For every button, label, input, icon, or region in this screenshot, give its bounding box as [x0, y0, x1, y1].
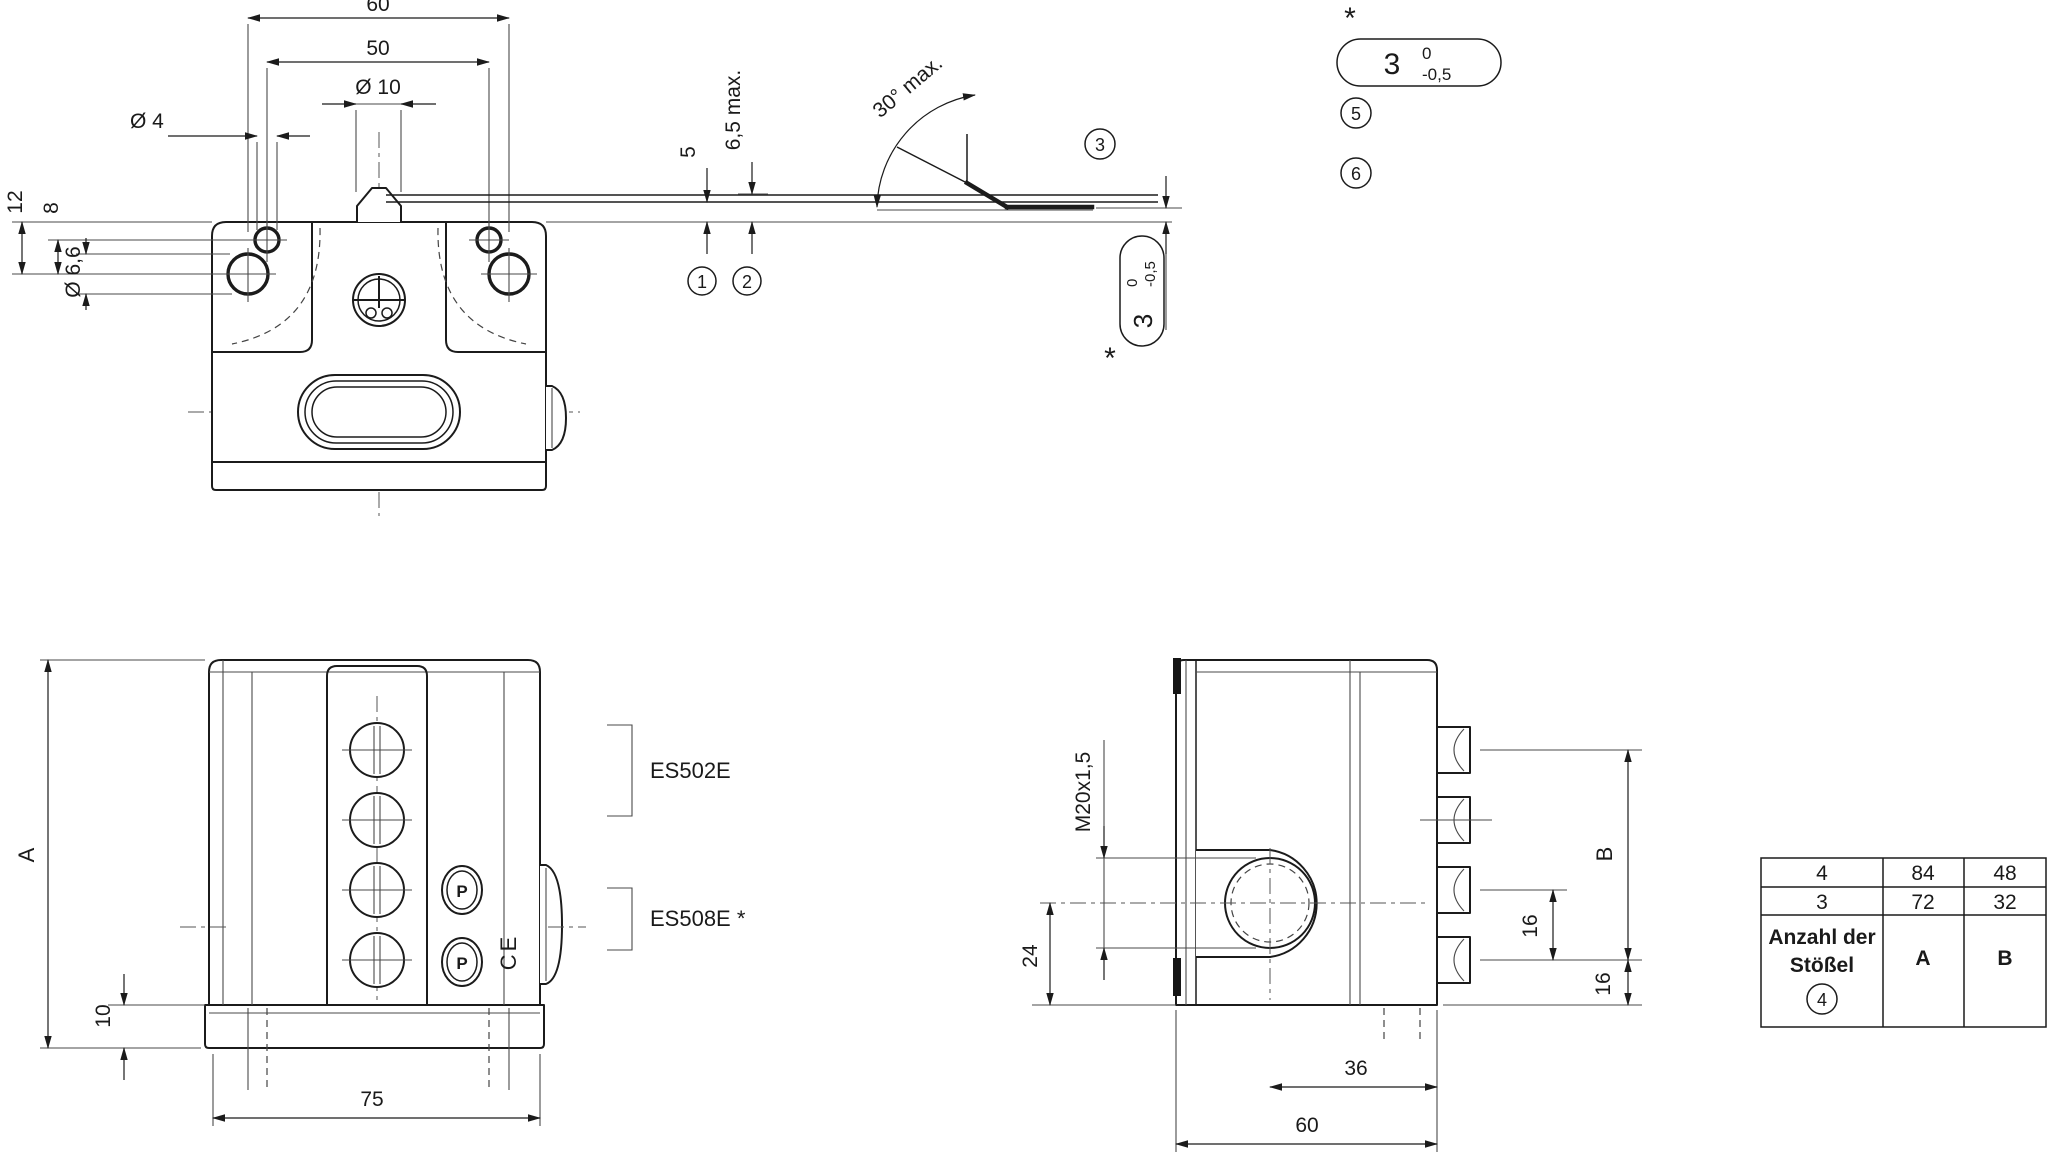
- callout-3: 3: [1085, 129, 1115, 159]
- dim-height-A: A: [14, 847, 39, 862]
- approval-mark-2: P: [442, 938, 482, 986]
- cell-plungers: 3: [1816, 891, 1828, 914]
- asterisk-lever: *: [1104, 342, 1116, 375]
- ce-mark: CE: [496, 934, 521, 971]
- approval-mark-1: P: [442, 866, 482, 914]
- header-anzahl: Anzahl der: [1768, 926, 1875, 949]
- svg-text:1: 1: [697, 272, 707, 292]
- dim-pretravel-5: 5: [677, 146, 700, 158]
- tolerance-pill-horizontal: 3 0 -0,5: [1337, 39, 1501, 86]
- svg-text:P: P: [456, 954, 467, 973]
- cell-b: 48: [1993, 862, 2016, 885]
- svg-text:P: P: [456, 882, 467, 901]
- callout-4-label: 4: [1817, 990, 1827, 1010]
- cell-plungers: 4: [1816, 862, 1828, 885]
- callout-1: 1: [688, 267, 716, 295]
- cell-a: 84: [1911, 862, 1935, 885]
- svg-text:2: 2: [742, 272, 752, 292]
- dim-pitch-16b: 16: [1592, 972, 1615, 995]
- svg-text:6: 6: [1351, 164, 1361, 184]
- header-stoessel: Stößel: [1790, 954, 1854, 977]
- tolerance-lower: -0,5: [1142, 261, 1159, 287]
- side-flange: [205, 1005, 544, 1048]
- cell-a: 72: [1911, 891, 1934, 914]
- tolerance-value: 3: [1384, 48, 1401, 81]
- tolerance-lower: -0,5: [1422, 65, 1451, 84]
- cover-screw: [353, 274, 405, 326]
- dim-width-75: 75: [360, 1088, 383, 1111]
- tolerance-upper: 0: [1422, 44, 1431, 63]
- dim-total-travel-65: 6,5 max.: [722, 70, 745, 151]
- dim-base-10: 10: [92, 1004, 115, 1027]
- dim-12: 12: [4, 190, 27, 213]
- dim-60-bottom: 60: [1295, 1114, 1318, 1137]
- svg-text:5: 5: [1351, 104, 1361, 124]
- dim-large-hole-diameter: Ø 6,6: [62, 246, 85, 297]
- dim-thread-m20: M20x1,5: [1072, 752, 1095, 833]
- dim-50: 50: [366, 37, 389, 60]
- cell-b: 32: [1993, 891, 2016, 914]
- dim-24: 24: [1019, 944, 1042, 968]
- model-name: ES508E *: [650, 906, 746, 931]
- dim-small-hole-diameter: Ø 4: [130, 110, 164, 133]
- callout-6: 6: [1341, 158, 1371, 188]
- side-plunger-bump: [540, 865, 562, 984]
- asterisk-note: *: [1344, 2, 1356, 35]
- dim-height-B: B: [1592, 847, 1617, 862]
- dim-plunger-diameter: Ø 10: [355, 76, 401, 99]
- tolerance-value: 3: [1128, 314, 1158, 328]
- switch-base: [212, 462, 546, 490]
- model-name: ES502E: [650, 758, 731, 783]
- dim-pitch-16a: 16: [1519, 914, 1542, 937]
- technical-drawing-page: 60 50 Ø 10 Ø 4 12 8 Ø 6,6 5: [0, 0, 2048, 1152]
- dim-60-top: 60: [366, 0, 389, 16]
- callout-5: 5: [1341, 98, 1371, 128]
- header-col-a: A: [1915, 947, 1930, 970]
- header-col-b: B: [1997, 947, 2012, 970]
- tolerance-upper: 0: [1124, 279, 1141, 287]
- callout-2: 2: [733, 267, 761, 295]
- tolerance-pill-vertical: 3 0 -0,5: [1120, 236, 1164, 346]
- limit-switch-drawing: 60 50 Ø 10 Ø 4 12 8 Ø 6,6 5: [0, 0, 2048, 1152]
- plunger-table: 4 84 48 3 72 32 Anzahl der Stößel 4 A B: [1761, 858, 2046, 1027]
- dim-8: 8: [40, 202, 63, 214]
- svg-text:3: 3: [1095, 135, 1105, 155]
- dim-36: 36: [1344, 1057, 1367, 1080]
